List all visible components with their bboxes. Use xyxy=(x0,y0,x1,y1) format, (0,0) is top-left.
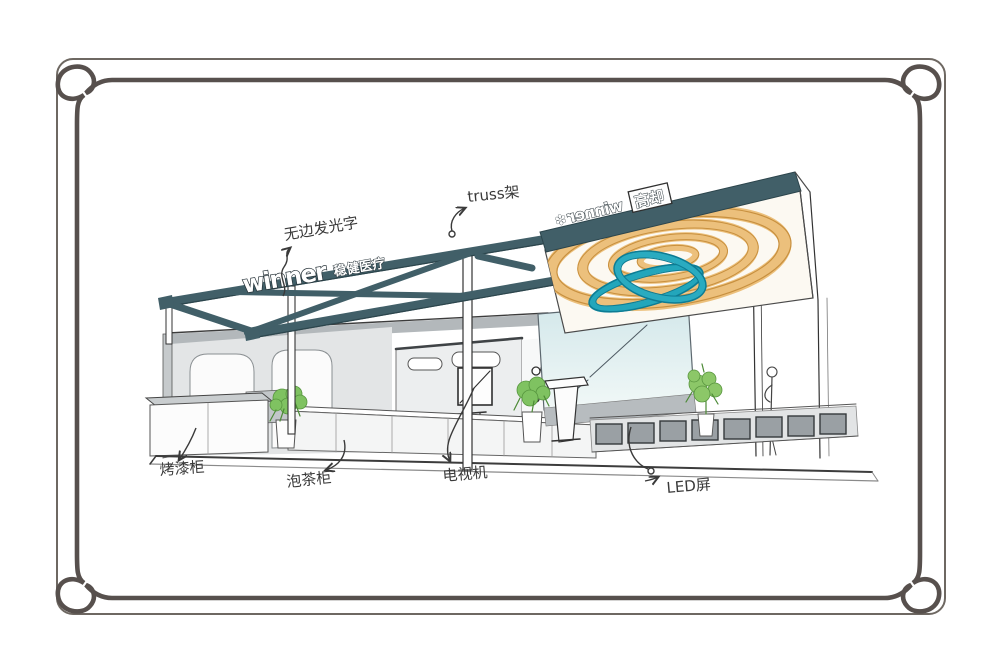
signage-slot xyxy=(408,358,442,370)
signage-slot xyxy=(452,352,500,367)
annotation-label: truss架 xyxy=(467,183,521,206)
flower-icon: ✽ xyxy=(553,212,568,230)
annotation-label: 无边发光字 xyxy=(283,213,360,244)
annotation-label: LED屏 xyxy=(666,475,712,497)
sketch-page: winner 稳健医疗 ✽ winner 高却 无边发光字 truss架 烤漆柜… xyxy=(0,0,1000,670)
brand-cn-text: 稳健医疗 xyxy=(332,255,386,279)
truss-rung xyxy=(478,256,532,268)
annotation-label: 烤漆柜 xyxy=(159,458,205,479)
booth-sketch-canvas: winner 稳健医疗 ✽ winner 高却 无边发光字 truss架 烤漆柜… xyxy=(0,0,1000,670)
annotation-truss: truss架 xyxy=(449,183,520,237)
annotation-label: 电视机 xyxy=(442,463,488,485)
led-module xyxy=(628,423,654,443)
led-module xyxy=(724,419,750,439)
annotation-label: 泡茶柜 xyxy=(286,468,333,491)
post xyxy=(288,286,295,434)
led-module xyxy=(788,416,814,436)
paint-cabinet-counter xyxy=(146,393,272,456)
roof-slab xyxy=(539,172,813,333)
led-module xyxy=(820,414,846,434)
led-module xyxy=(596,424,622,444)
led-module xyxy=(756,417,782,437)
post xyxy=(463,250,472,470)
led-module xyxy=(660,421,686,441)
post xyxy=(166,304,172,344)
floor-platform-edge xyxy=(150,456,878,481)
truss-rung xyxy=(170,304,254,332)
